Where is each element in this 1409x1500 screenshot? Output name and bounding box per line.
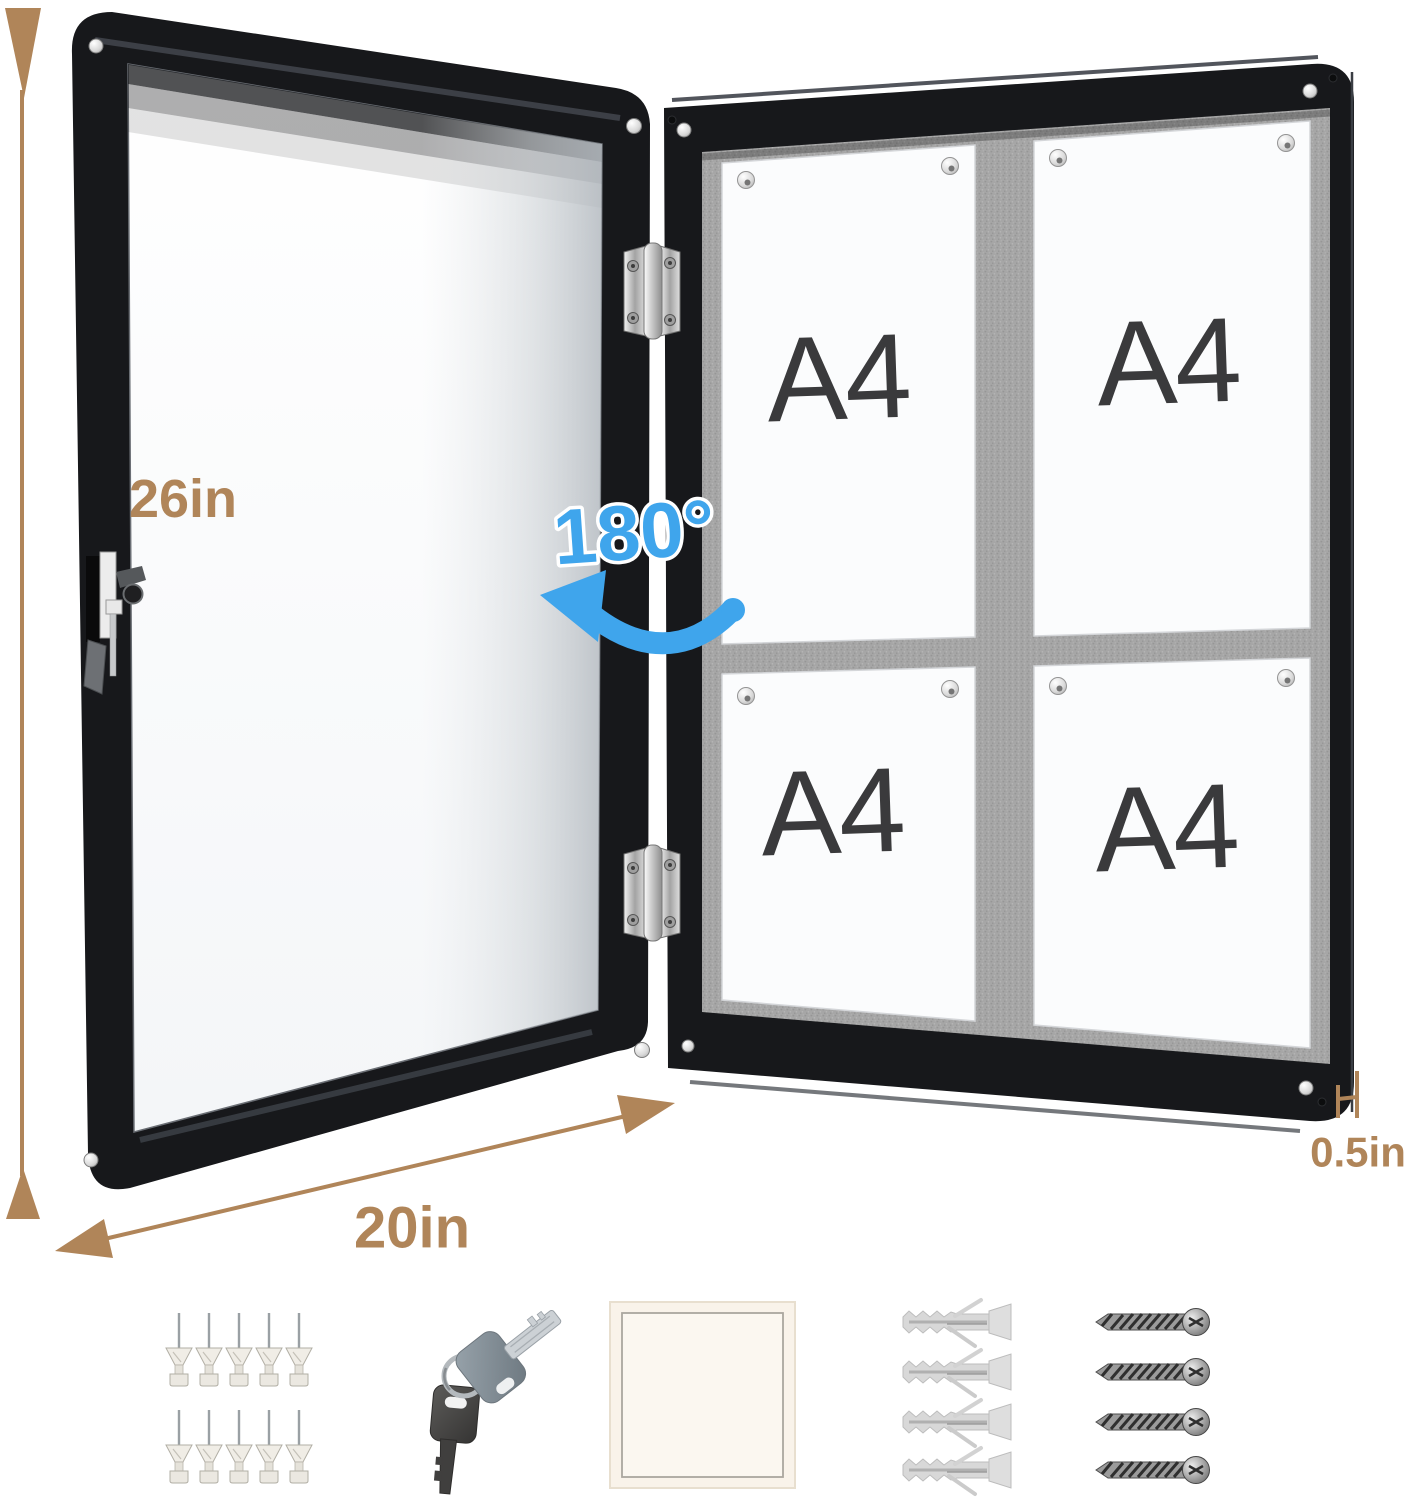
push-pin-icon [286,1313,312,1386]
paper-a4-top-left: A4 [722,145,975,644]
corner-screw [84,1153,98,1167]
glass-side-shade [128,64,602,1132]
product-illustration: A4 A4 A4 A4 [0,0,1409,1500]
lock-rod [110,614,116,676]
lock-bracket [106,600,122,614]
key-icon-dark [425,1384,480,1496]
lock-cylinder-icon [124,585,143,604]
push-pin-icon [1050,678,1067,695]
wall-anchor-icon [903,1300,1011,1346]
wall-anchor-icon [903,1350,1011,1396]
board-panel: A4 A4 A4 A4 [664,57,1354,1131]
paper-a4-bottom-left: A4 [722,667,975,1021]
paper-label: A4 [764,309,911,448]
corner-screw [682,1040,694,1052]
corner-hole [1329,74,1337,82]
wall-anchor-icon [903,1400,1011,1446]
paper-label: A4 [1092,759,1239,898]
push-pin-icon [1050,150,1067,167]
width-label: 20in [354,1196,470,1261]
corner-screw [1299,1081,1313,1095]
product-image: A4 A4 A4 A4 [0,0,1409,1500]
push-pin-icon [1278,670,1295,687]
push-pin-icon [226,1410,252,1483]
paper-a4-top-right: A4 [1034,121,1310,636]
screw-icon [1096,1359,1210,1386]
notepad-inner-border [622,1313,783,1477]
height-arrow-top-icon [5,8,41,98]
push-pin-icon [738,172,755,189]
hinge-pivot [635,1043,650,1058]
height-label: 26in [129,469,237,529]
push-pins-set [166,1313,312,1483]
depth-label: 0.5in [1310,1129,1406,1176]
hinge-bottom-icon [624,845,680,941]
push-pin-icon [166,1410,192,1483]
corner-screw [1303,84,1317,98]
keys-set [425,1291,576,1496]
push-pin-icon [196,1410,222,1483]
rotation-label: 180° [550,482,717,581]
push-pin-icon [256,1410,282,1483]
paper-label: A4 [758,743,905,882]
width-arrow-right-icon [617,1095,675,1134]
height-arrow-bottom-icon [6,1168,40,1219]
push-pin-icon [196,1313,222,1386]
push-pin-icon [166,1313,192,1386]
lock-recess [86,556,100,642]
paper-label: A4 [1094,293,1241,432]
paper-a4-bottom-right: A4 [1034,658,1310,1048]
hinge-top-icon [624,243,680,339]
push-pin-icon [256,1313,282,1386]
width-arrow-left-icon [55,1219,113,1258]
push-pin-icon [942,681,959,698]
push-pin-icon [1278,135,1295,152]
screws-set [1096,1309,1210,1484]
push-pin-icon [942,158,959,175]
push-pin-icon [738,688,755,705]
wall-anchor-icon [903,1448,1011,1494]
accessories [166,1291,1210,1496]
corner-screw [89,39,103,53]
lock-latch [84,640,106,694]
anchors-set [903,1300,1011,1494]
push-pin-icon [286,1410,312,1483]
screw-icon [1096,1457,1210,1484]
height-dimension [5,8,41,1219]
screw-icon [1096,1309,1210,1336]
hinge-pivot [627,119,642,134]
notepad [610,1302,795,1488]
push-pin-icon [226,1313,252,1386]
screw-icon [1096,1409,1210,1436]
corner-screw [677,123,691,137]
rotation-arrow-tail [721,598,745,622]
corner-hole [668,116,676,124]
corner-hole [1318,1098,1326,1106]
